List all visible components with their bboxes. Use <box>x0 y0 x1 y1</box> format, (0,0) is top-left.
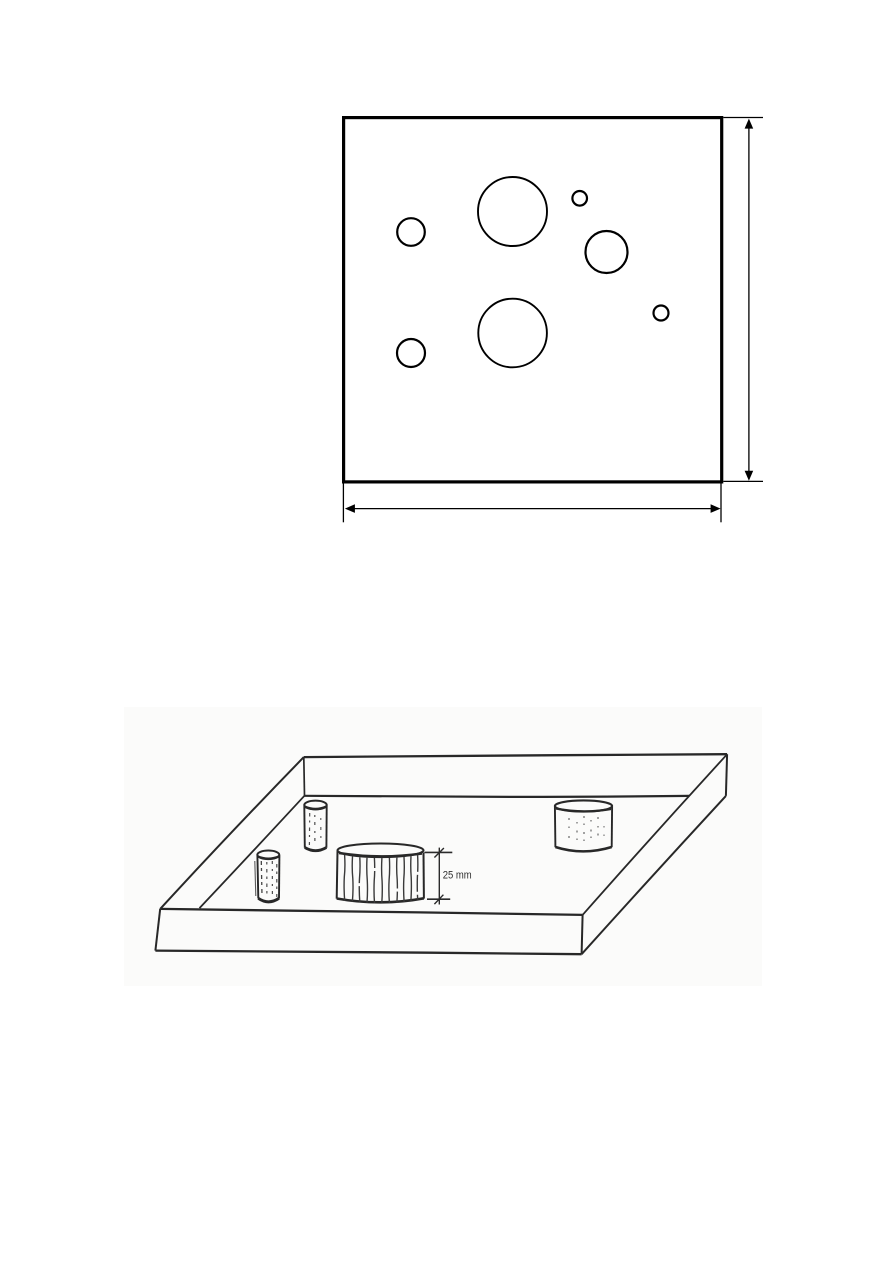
svg-text:25 mm: 25 mm <box>443 870 472 882</box>
